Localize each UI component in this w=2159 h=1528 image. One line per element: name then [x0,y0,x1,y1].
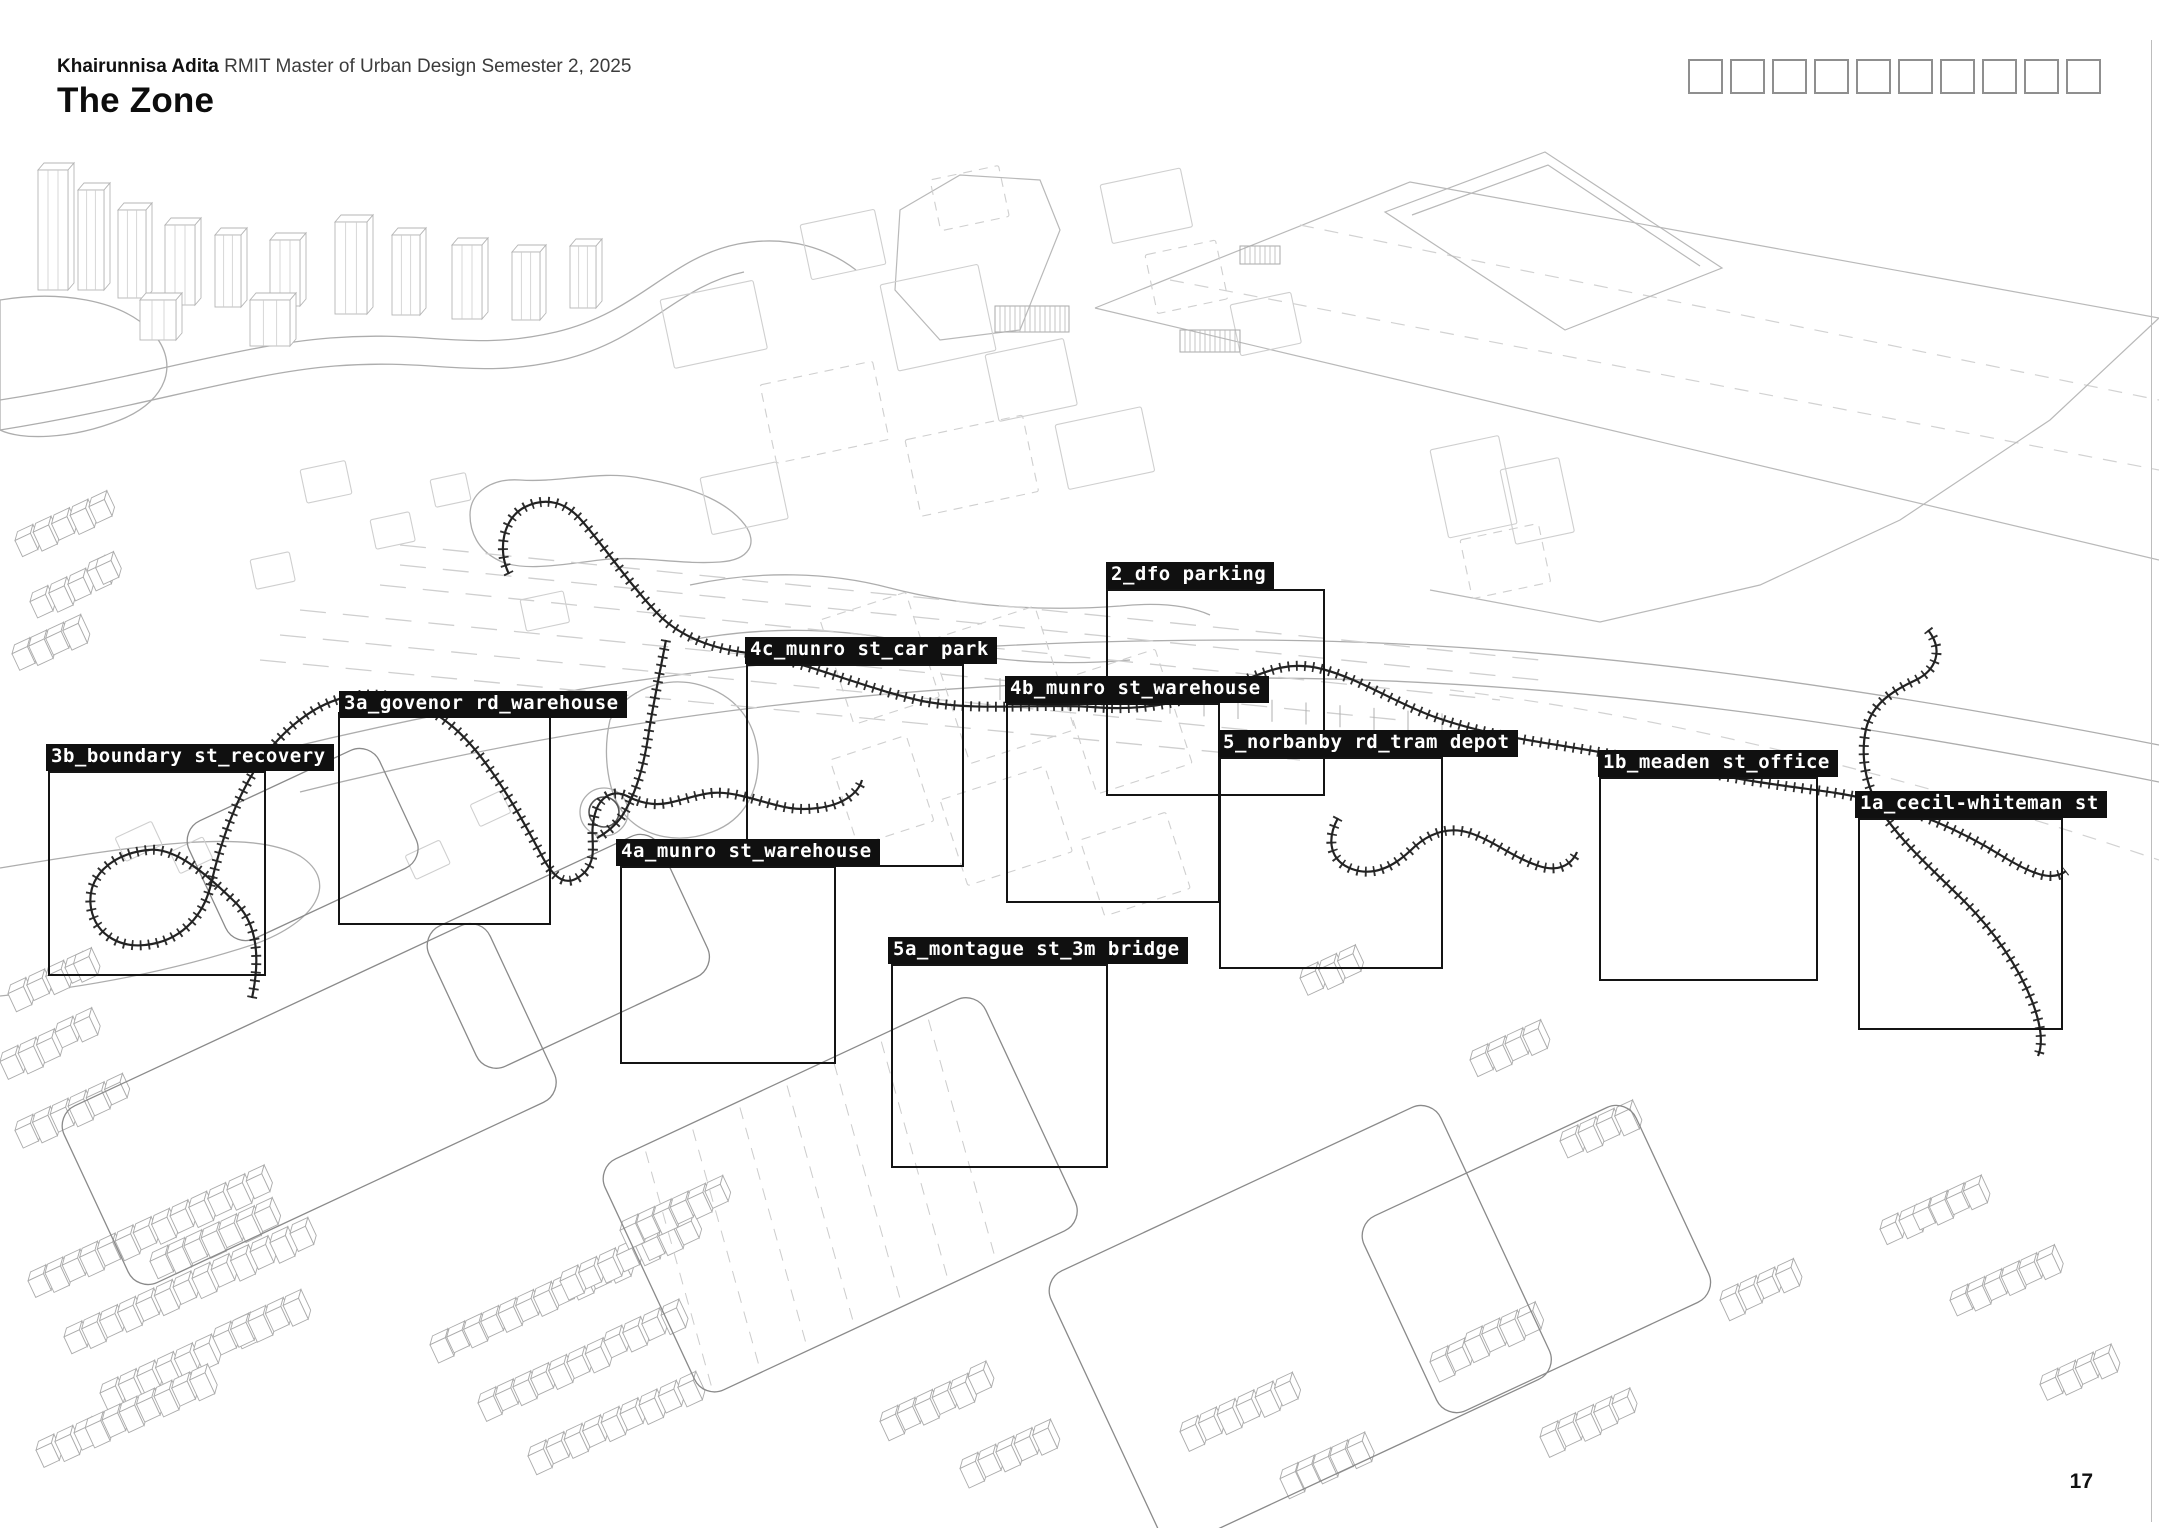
zone-label-5: 5_norbanby rd_tram depot [1218,730,1518,757]
zone-box-4b [1006,703,1220,903]
zone-box-1a [1858,818,2063,1030]
zone-label-3a: 3a_govenor rd_warehouse [339,691,627,718]
page-thumbnail-box [1772,59,1807,94]
zone-label-4b: 4b_munro st_warehouse [1005,676,1269,703]
zone-label-1a: 1a_cecil-whiteman st [1855,791,2107,818]
page-thumbnail-box [1730,59,1765,94]
zone-box-4a [620,866,836,1064]
author-name: Khairunnisa Adita [57,56,219,77]
zone-label-5a: 5a_montague st_3m bridge [888,937,1188,964]
zone-label-3b: 3b_boundary st_recovery [46,744,334,771]
page-number: 17 [2070,1470,2093,1494]
zone-box-1b [1599,777,1818,981]
zone-box-3a [338,712,551,925]
page-thumbnail-box [2024,59,2059,94]
zone-box-4c [746,664,964,867]
page-thumbnail-box [1898,59,1933,94]
zone-label-2: 2_dfo parking [1106,562,1274,589]
zone-label-4c: 4c_munro st_car park [745,637,997,664]
page-thumbnail-box [1688,59,1723,94]
zone-box-5 [1219,757,1443,969]
sheet-edge-line [2151,40,2152,1522]
page-thumbnail-row [1688,59,2101,94]
presentation-sheet: 3b_boundary st_recovery 3a_govenor rd_wa… [0,0,2159,1528]
zone-label-4a: 4a_munro st_warehouse [616,839,880,866]
page-thumbnail-box [1856,59,1891,94]
course-text: RMIT Master of Urban Design Semester 2, … [224,56,631,77]
byline: Khairunnisa Adita RMIT Master of Urban D… [57,56,631,79]
page-thumbnail-box [2066,59,2101,94]
zone-label-1b: 1b_meaden st_office [1598,750,1838,777]
page-thumbnail-box [1814,59,1849,94]
sheet-header: Khairunnisa Adita RMIT Master of Urban D… [57,56,631,121]
zone-box-5a [891,964,1108,1168]
page-thumbnail-box [1982,59,2017,94]
page-thumbnail-box [1940,59,1975,94]
page-title: The Zone [57,81,631,121]
zone-box-3b [48,771,266,976]
